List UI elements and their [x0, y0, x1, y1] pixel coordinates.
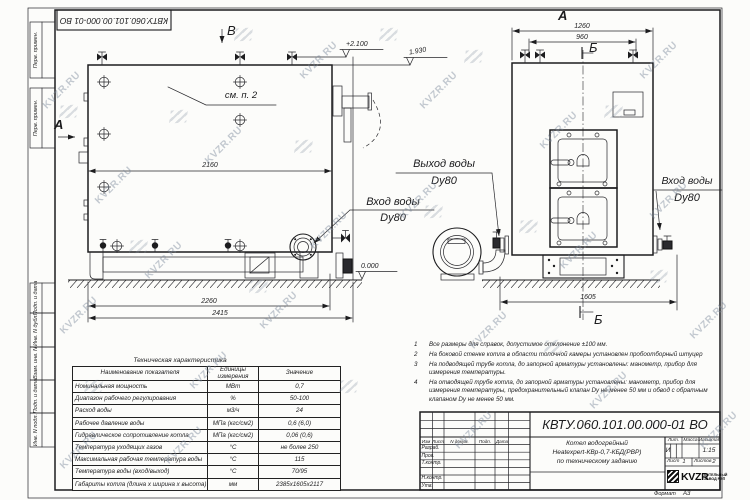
view-label-a: А	[558, 9, 567, 24]
tb-sheet-value: 1	[679, 459, 689, 465]
spec-cell: 70/95	[259, 466, 341, 478]
spec-table: Наименование показателя Единицы измерени…	[72, 366, 341, 491]
top-stamp-doc-number: КВТУ.060.101.00.000-01 ВО	[57, 10, 171, 30]
note-item: 3 На подводящей трубе котла, до запорной…	[414, 361, 718, 378]
spec-header-row: Наименование показателя Единицы измерени…	[73, 367, 341, 381]
spec-cell: 50-100	[259, 393, 341, 405]
side-view-linework	[58, 29, 447, 322]
tb-title-line3: по техническому заданию	[531, 458, 663, 465]
water-inlet-right-dy80: Dy80	[652, 192, 722, 204]
section-label-a: А	[54, 118, 63, 133]
spec-cell: 0,7	[259, 381, 341, 393]
dim-960: 960	[566, 34, 598, 42]
tb-lit-header: Лит.	[665, 438, 682, 443]
kvzr-logo-icon	[667, 470, 679, 483]
note-number: 2	[414, 351, 426, 359]
tb-row-prov: Пров.	[422, 454, 435, 460]
spec-cell: 24	[259, 405, 341, 417]
spec-cell: Расход воды	[73, 405, 208, 417]
note-text: На подводящей трубе котла, до запорной а…	[429, 361, 718, 378]
elevation-0000: 0.000	[361, 263, 379, 271]
tb-col-list: Лист	[431, 439, 445, 444]
spec-cell: Температура воды (вход/выход)	[73, 466, 208, 478]
spec-row: Температура уходящих газов °С не более 2…	[73, 441, 341, 453]
tb-scale-value: 1:15	[698, 447, 720, 454]
spec-cell: МПа (кгс/см2)	[208, 429, 259, 441]
format-value: А3	[683, 491, 690, 498]
spec-cell: 0,06 (0,6)	[259, 429, 341, 441]
spec-cell: Максимальная рабочая температура воды	[73, 454, 208, 466]
tb-col-ndoc: N докум.	[444, 439, 475, 444]
note-text: На боковой стенке котла в области топочн…	[429, 351, 718, 359]
spec-cell: не более 250	[259, 441, 341, 453]
spec-row: Рабочее давление воды МПа (кгс/см2) 0,6 …	[73, 417, 341, 429]
section-label-b-bottom: Б	[594, 313, 602, 328]
tb-title-line1: Котел водогрейный	[531, 440, 663, 447]
margin-label: Взам. инв. N	[33, 347, 39, 379]
margin-label: Подп. и дата	[33, 281, 39, 315]
kvzr-brand-sub1: КОТЕЛЬНЫЙ	[704, 473, 727, 477]
dim-2260: 2260	[185, 298, 233, 306]
spec-table-title: Техническая характеристика	[110, 357, 250, 364]
spec-row: Расход воды м3/ч 24	[73, 405, 341, 417]
note-number: 3	[414, 361, 426, 378]
note-item: 1 Все размеры для справок, допустимое от…	[414, 341, 718, 349]
section-label-v: В	[227, 24, 236, 39]
spec-row: Габариты котла (длина х ширина х высота)…	[73, 478, 341, 490]
note-number: 1	[414, 341, 426, 349]
tb-scale-header: Масштаб	[698, 438, 720, 443]
spec-row: Температура воды (вход/выход) °С 70/95	[73, 466, 341, 478]
spec-row: Максимальная рабочая температура воды °С…	[73, 454, 341, 466]
spec-cell: МПа (кгс/см2)	[208, 417, 259, 429]
spec-row: Номинальная мощность МВт 0,7	[73, 381, 341, 393]
note-item: 4 На отводящей трубе котла, до запорной …	[414, 379, 718, 404]
elevation-plus-2100: +2.100	[346, 41, 368, 49]
tb-sheets-value: 2	[709, 459, 719, 465]
spec-cell: Гидравлическое сопротивление котла	[73, 429, 208, 441]
dim-2160: 2160	[186, 162, 234, 170]
spec-cell: 2385х1605х2117	[259, 478, 341, 490]
water-inlet-label: Вход воды	[352, 196, 434, 208]
margin-label: Инв. N дубл.	[33, 314, 39, 346]
margin-label: Инв. N подл.	[33, 414, 39, 446]
spec-header: Единицы измерения	[208, 367, 259, 381]
spec-cell: мм	[208, 478, 259, 490]
spec-cell: Номинальная мощность	[73, 381, 208, 393]
note-item: 2 На боковой стенке котла в области топо…	[414, 351, 718, 359]
spec-cell: °С	[208, 466, 259, 478]
dim-1605: 1605	[568, 294, 608, 302]
dim-2415: 2415	[196, 310, 244, 318]
spec-cell: 0,6 (6,0)	[259, 417, 341, 429]
note-text: На отводящей трубе котла, до запорной ар…	[429, 379, 718, 404]
doc-number: КВТУ.060.101.00.000-01 ВО	[530, 412, 720, 437]
tb-col-data: Дата	[495, 439, 509, 444]
tb-title-line2: Heatexpert-КВр-0,7-КБД(РВР)	[531, 449, 663, 456]
spec-row: Диапазон рабочего регулирования % 50-100	[73, 393, 341, 405]
tb-col-podp: Подп.	[475, 439, 495, 444]
spec-cell: Габариты котла (длина х ширина х высота)	[73, 478, 208, 490]
tb-sheet-label: Лист	[667, 459, 679, 464]
kvzr-brand-sub2: ЗАВОД РЭП	[704, 477, 725, 481]
note-text: Все размеры для справок, допустимое откл…	[429, 341, 718, 349]
tb-row-nkontr: Н.контр.	[422, 476, 443, 482]
notes-list: 1 Все размеры для справок, допустимое от…	[414, 341, 718, 406]
water-inlet-right-label: Вход воды	[652, 176, 722, 188]
spec-cell: м3/ч	[208, 405, 259, 417]
spec-cell: °С	[208, 454, 259, 466]
spec-header: Значение	[259, 367, 341, 381]
spec-cell: 115	[259, 454, 341, 466]
spec-cell: МВт	[208, 381, 259, 393]
water-outlet-dy80: Dy80	[398, 175, 490, 187]
water-inlet-dy80: Dy80	[352, 212, 434, 224]
dim-1260: 1260	[564, 23, 600, 31]
spec-cell: Диапазон рабочего регулирования	[73, 393, 208, 405]
margin-label: Перв. примен.	[33, 100, 39, 137]
spec-row: Гидравлическое сопротивление котла МПа (…	[73, 429, 341, 441]
front-view-linework	[396, 28, 722, 320]
note-number: 4	[414, 379, 426, 404]
spec-cell: Рабочее давление воды	[73, 417, 208, 429]
see-note-annotation: см. п. 2	[208, 91, 274, 102]
format-label: Формат	[654, 491, 676, 497]
tb-lit-value: И	[663, 447, 673, 454]
drawing-sheet: КВТУ.060.101.00.000-01 ВО Перв. примен. …	[0, 0, 750, 500]
spec-header: Наименование показателя	[73, 367, 208, 381]
section-label-b-top: Б	[589, 41, 597, 56]
spec-cell: %	[208, 393, 259, 405]
tb-mass-header: Масса	[682, 438, 699, 443]
margin-label: Подп. и дата	[33, 379, 39, 413]
tb-row-utv: Утв.	[422, 484, 433, 490]
spec-cell: °С	[208, 441, 259, 453]
margin-label: Перв. примен.	[33, 32, 39, 69]
spec-cell: Температура уходящих газов	[73, 441, 208, 453]
tb-row-tkontr: Т.контр.	[422, 461, 442, 467]
tb-row-razrab: Разраб.	[422, 446, 440, 452]
water-outlet-label: Выход воды	[398, 158, 490, 170]
